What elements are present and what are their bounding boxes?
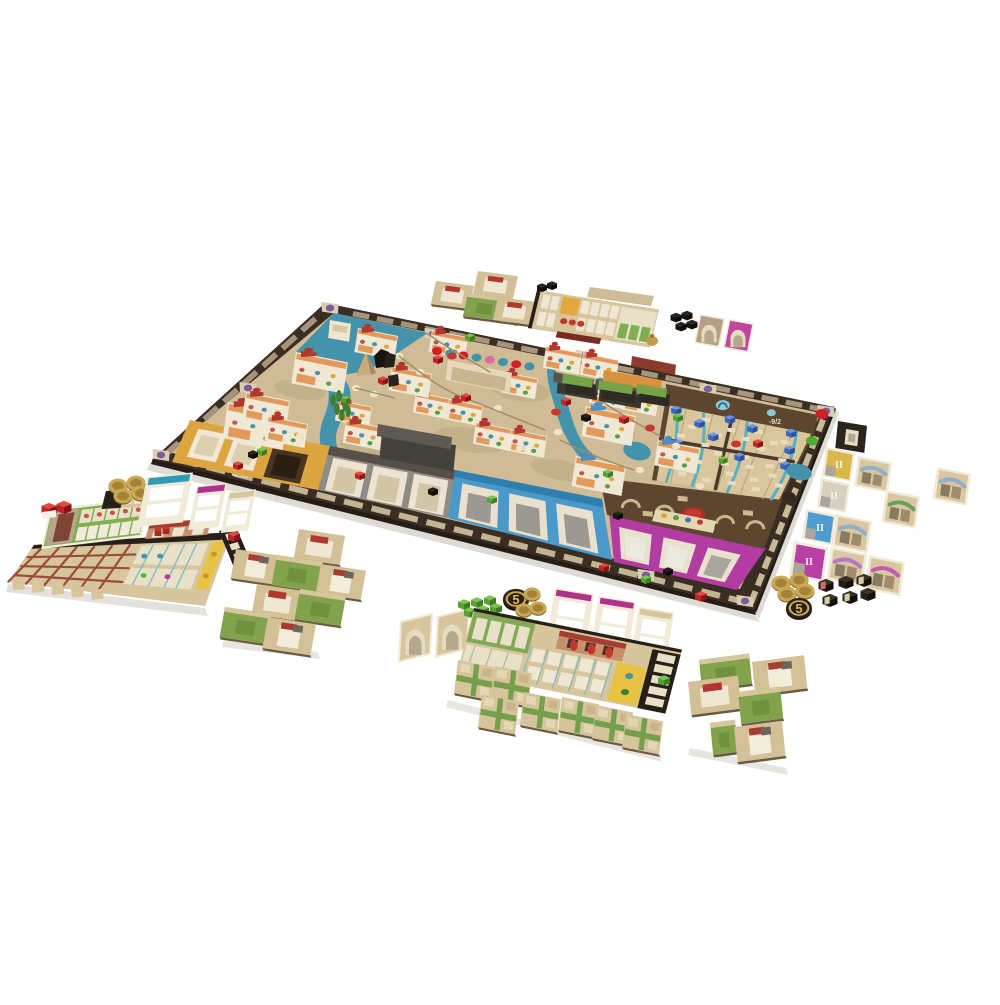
svg-text:II: II xyxy=(830,491,838,502)
svg-text:II: II xyxy=(835,460,843,471)
svg-text:II: II xyxy=(816,523,824,534)
svg-text:5: 5 xyxy=(795,601,802,616)
svg-text:II: II xyxy=(805,557,813,568)
svg-text:-9/2: -9/2 xyxy=(769,419,781,426)
svg-text:5: 5 xyxy=(512,592,519,607)
